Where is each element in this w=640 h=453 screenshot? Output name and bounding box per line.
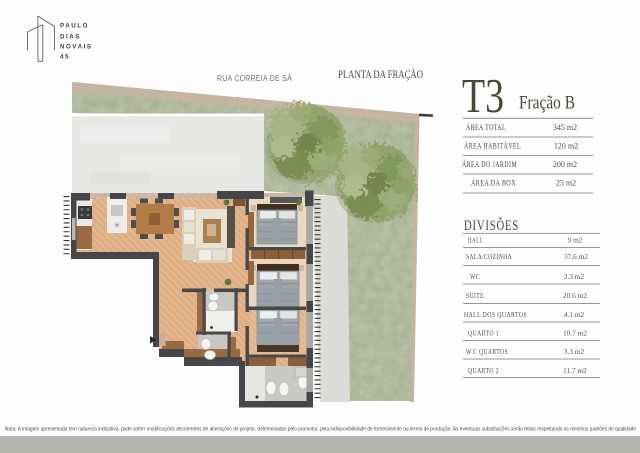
svg-text:WC: WC xyxy=(470,273,480,281)
svg-text:RUA CORREIA DE SÁ: RUA CORREIA DE SÁ xyxy=(217,73,292,83)
svg-text:DIAS: DIAS xyxy=(60,33,81,40)
svg-text:45: 45 xyxy=(60,53,70,60)
svg-text:20.6 m2: 20.6 m2 xyxy=(563,291,587,300)
svg-text:SUITE: SUITE xyxy=(466,292,484,300)
svg-text:ÁREA DO JARDIM: ÁREA DO JARDIM xyxy=(462,159,517,169)
svg-text:2.3 m2: 2.3 m2 xyxy=(564,272,585,281)
svg-text:ÁREA TOTAL: ÁREA TOTAL xyxy=(466,122,506,132)
svg-text:37.6 m2: 37.6 m2 xyxy=(564,252,588,261)
svg-text:3.3 m2: 3.3 m2 xyxy=(564,347,585,356)
svg-text:200 m2: 200 m2 xyxy=(553,160,577,169)
svg-text:PAULO: PAULO xyxy=(60,22,89,29)
svg-text:11.7 m2: 11.7 m2 xyxy=(563,366,587,375)
svg-text:ÁREA DA BOX: ÁREA DA BOX xyxy=(471,178,516,188)
svg-text:NOVAIS: NOVAIS xyxy=(60,43,93,50)
svg-text:PLANTA DA FRAÇÃO: PLANTA DA FRAÇÃO xyxy=(338,67,423,81)
svg-text:345 m2: 345 m2 xyxy=(553,123,577,132)
svg-text:120 m2: 120 m2 xyxy=(554,142,578,151)
svg-text:Nota: A Imagem apresentada tem: Nota: A Imagem apresentada tem natureza … xyxy=(5,427,636,433)
svg-text:QUARTO 2: QUARTO 2 xyxy=(468,367,499,375)
svg-text:9 m2: 9 m2 xyxy=(568,236,583,245)
svg-text:W.C QUARTOS: W.C QUARTOS xyxy=(466,348,508,356)
svg-text:T3: T3 xyxy=(462,68,504,123)
svg-text:SALA/COZINHA: SALA/COZINHA xyxy=(466,253,512,261)
svg-text:Fração B: Fração B xyxy=(519,93,575,114)
svg-text:HALL DOS QUARTOS: HALL DOS QUARTOS xyxy=(464,311,527,319)
svg-text:25 m2: 25 m2 xyxy=(556,179,576,188)
svg-text:10.7 m2: 10.7 m2 xyxy=(563,329,587,338)
svg-text:DIVISÕES: DIVISÕES xyxy=(464,217,519,234)
svg-text:ÁREA HABITÁVEL: ÁREA HABITÁVEL xyxy=(464,141,521,151)
svg-text:QUARTO 1: QUARTO 1 xyxy=(468,330,499,338)
svg-text:4.1 m2: 4.1 m2 xyxy=(564,310,585,319)
svg-text:HALL: HALL xyxy=(468,237,483,245)
